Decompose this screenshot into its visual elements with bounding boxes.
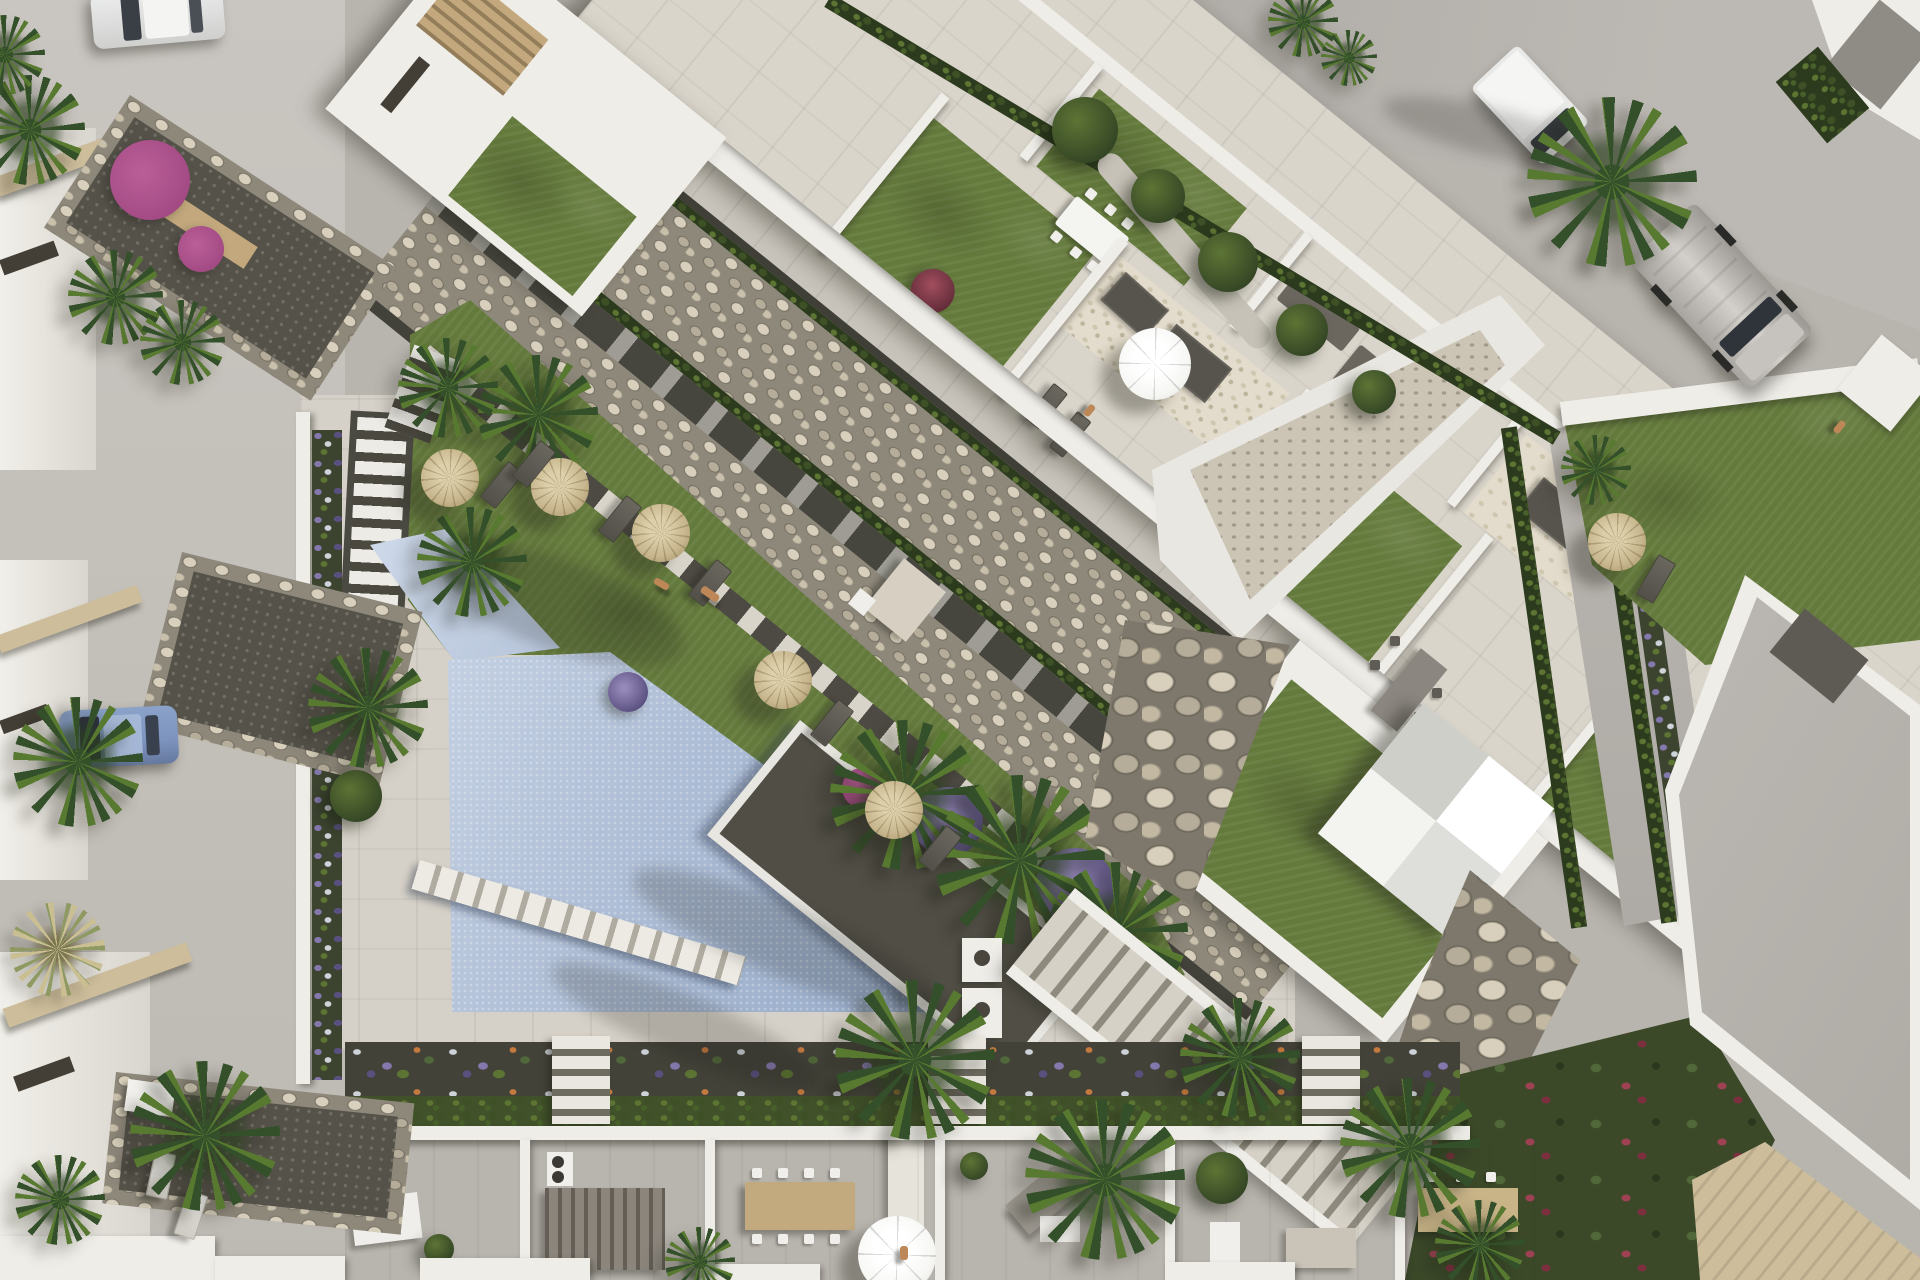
patio3-chair	[752, 1234, 762, 1244]
dark-chair	[1432, 688, 1442, 698]
straw-parasol-6	[1588, 513, 1646, 571]
grill-burner-2	[552, 1171, 564, 1183]
straw-parasol-4	[754, 651, 812, 709]
road-palm-large	[1527, 97, 1697, 267]
white-car-rear-window	[188, 0, 203, 33]
shower-drain-dot-1	[974, 950, 990, 966]
patio3-chair	[804, 1168, 814, 1178]
patio3-dining-table	[745, 1182, 855, 1230]
blue-car-rear-window	[145, 715, 160, 756]
patio5-table	[1286, 1228, 1356, 1268]
palm	[1025, 1100, 1185, 1260]
palm	[417, 507, 527, 617]
palm	[15, 1155, 105, 1245]
patio3-chair	[778, 1234, 788, 1244]
lawn-lavender	[608, 672, 648, 712]
garden-tree	[1276, 304, 1328, 356]
patio5-tree	[1196, 1152, 1248, 1204]
palm	[1180, 998, 1300, 1118]
palm	[1561, 435, 1631, 505]
patio3-chair	[804, 1234, 814, 1244]
street-bush	[330, 770, 382, 822]
palm-banana	[835, 980, 995, 1140]
white-terrace-parasol	[1119, 328, 1191, 400]
left-bottom-roof-1	[0, 1236, 215, 1280]
palm	[140, 300, 225, 385]
white-car-roof	[142, 0, 190, 39]
person-near-shower	[900, 1246, 908, 1260]
palm	[1340, 1078, 1480, 1218]
patio3-chair	[830, 1234, 840, 1244]
garden-stairs-1	[552, 1036, 610, 1124]
palm	[1435, 1200, 1525, 1280]
palm	[308, 648, 428, 768]
palm	[13, 697, 143, 827]
white-car-windshield	[120, 0, 142, 41]
pampas-grass	[10, 902, 105, 997]
patio4-plant	[960, 1152, 988, 1180]
palm	[398, 338, 498, 438]
patio5-planter	[1210, 1222, 1240, 1262]
patio-divider-3	[935, 1140, 945, 1280]
dark-chair	[1370, 660, 1380, 670]
palm	[130, 1061, 280, 1211]
palm	[1321, 30, 1377, 86]
garden-tree	[1131, 169, 1185, 223]
garden-tree	[1198, 232, 1258, 292]
aerial-render-canvas	[0, 0, 1920, 1280]
patio3-chair	[752, 1168, 762, 1178]
straw-parasol-3	[632, 504, 690, 562]
garden-tree	[1352, 370, 1396, 414]
straw-parasol-5	[865, 781, 923, 839]
left-bottom-roof-2	[215, 1256, 345, 1280]
patio3-chair	[778, 1168, 788, 1178]
garden-tree	[1052, 97, 1118, 163]
straw-parasol-1	[421, 449, 479, 507]
patio3-chair	[830, 1168, 840, 1178]
dark-chair	[1390, 636, 1400, 646]
patio6-chair	[1486, 1172, 1496, 1182]
bougainvillea-2	[178, 226, 224, 272]
bottom-wall-cap-3	[1165, 1262, 1295, 1280]
bottom-wall-cap-1	[420, 1258, 590, 1280]
bougainvillea-1	[110, 140, 190, 220]
grill-burner-1	[552, 1156, 564, 1168]
